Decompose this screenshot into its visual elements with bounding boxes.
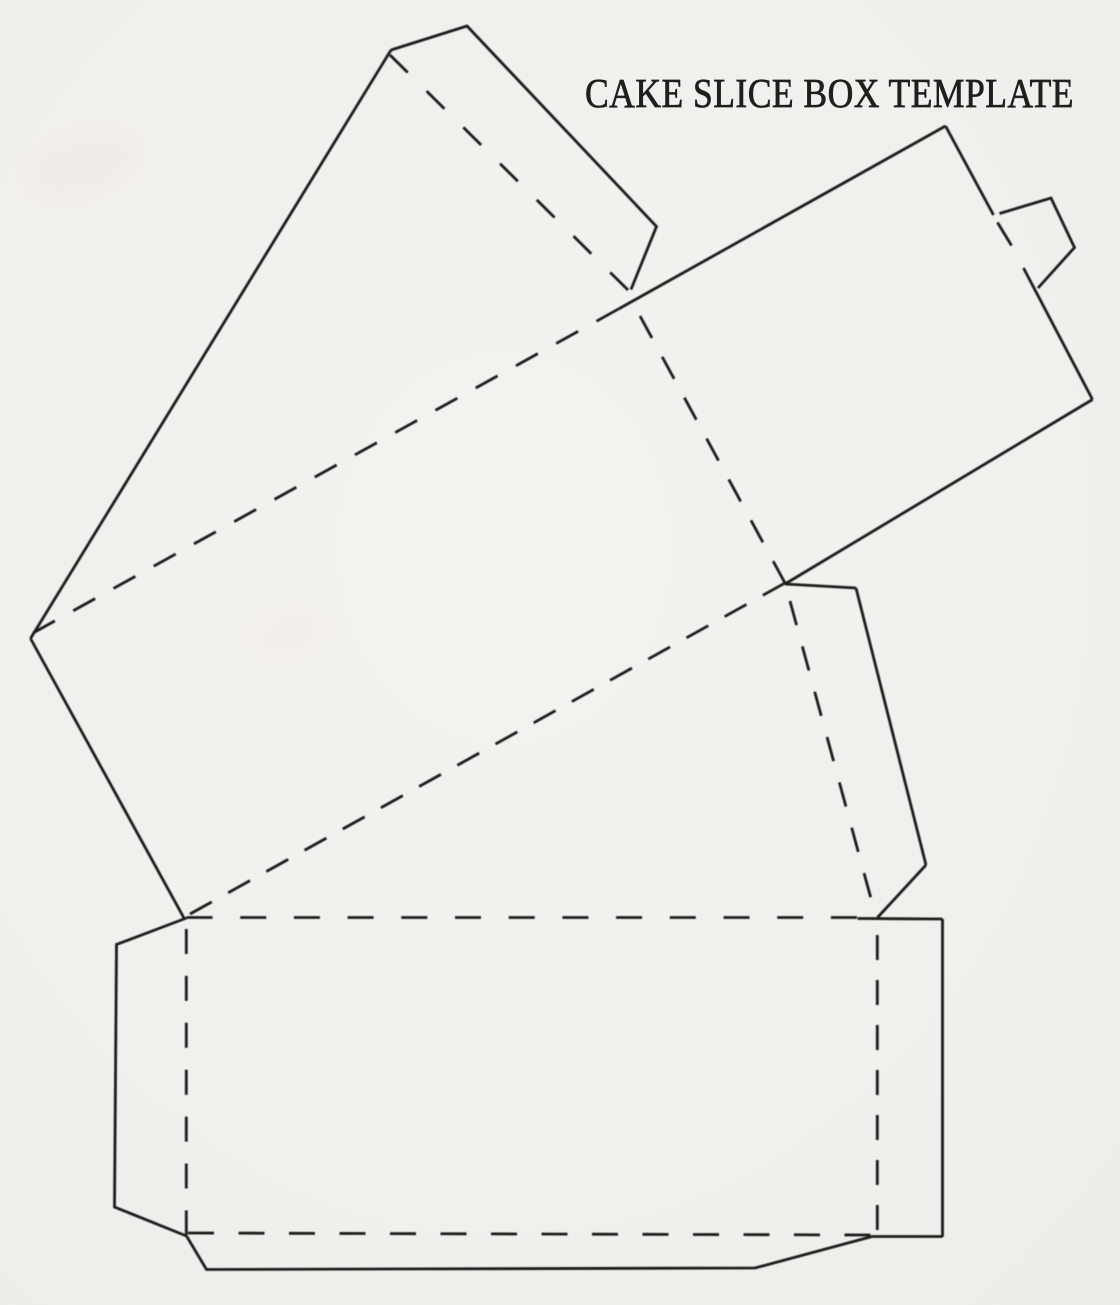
svg-text:CAKE SLICE BOX TEMPLATE: CAKE SLICE BOX TEMPLATE: [585, 70, 1074, 116]
